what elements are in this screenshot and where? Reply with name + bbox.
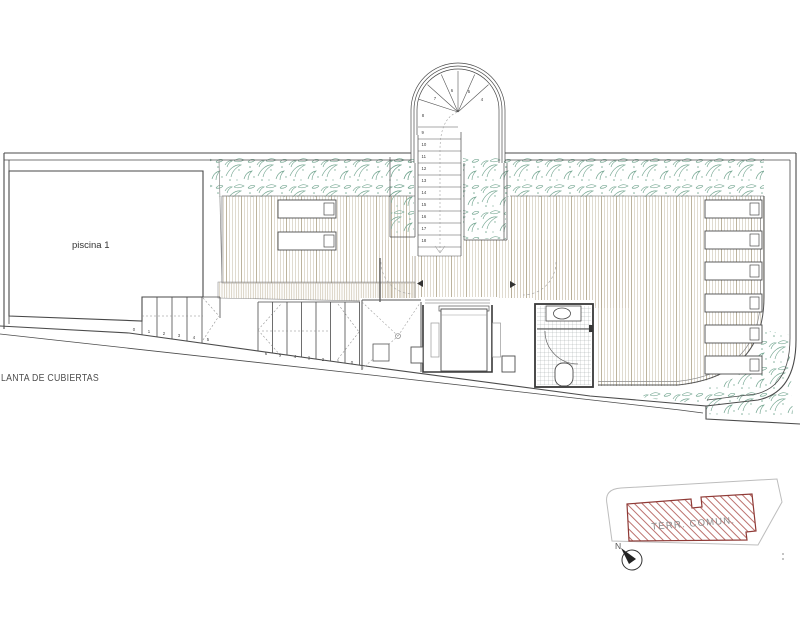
lower-step-label: 5 [279,353,282,358]
bed [441,309,487,371]
pool-stair: 0 1 2 3 4 5 [133,297,220,343]
roof-plan-page: piscina 1 0 1 2 3 4 5 6 5 4 3 2 1 0 [0,0,800,640]
flight-step-label: 15 [422,202,427,207]
lower-step-label: 2 [322,357,325,362]
left-planter [391,158,414,236]
keyplan-common-terrace-area [627,494,756,541]
pool: piscina 1 [9,171,203,321]
roof-plan-drawing: piscina 1 0 1 2 3 4 5 6 5 4 3 2 1 0 [0,0,800,640]
right-planter [463,155,506,239]
flight-step-label: 11 [422,154,427,159]
plan-title: LANTA DE CUBIERTAS [1,372,99,384]
side-table [493,323,501,357]
lower-stair: 6 5 4 3 2 1 0 [258,302,360,365]
pool-label: piscina 1 [72,240,110,251]
flight-step-label: 10 [422,142,427,147]
flight-step-label: 16 [422,214,427,219]
pool-step-label: 4 [193,335,196,340]
flight-step-label: 17 [422,226,427,231]
flight-step-label: 13 [422,178,427,183]
pool-step-label: 1 [148,329,151,334]
north-label: N [615,541,621,551]
side-table [431,323,439,357]
north-arrow: N [615,541,642,570]
toilet [555,363,573,386]
flight-step-label: 18 [422,238,427,243]
flight-step-label: 12 [422,166,427,171]
pool-step-label: 0 [133,327,136,332]
flight-step-label: 14 [422,190,427,195]
stool [502,356,515,372]
keyplan: TERR. COMUN. N [607,479,784,570]
bathroom [535,304,593,387]
pool-step-label: 5 [207,337,210,342]
pool-step-label: 3 [178,333,181,338]
pool-step-label: 2 [163,331,166,336]
